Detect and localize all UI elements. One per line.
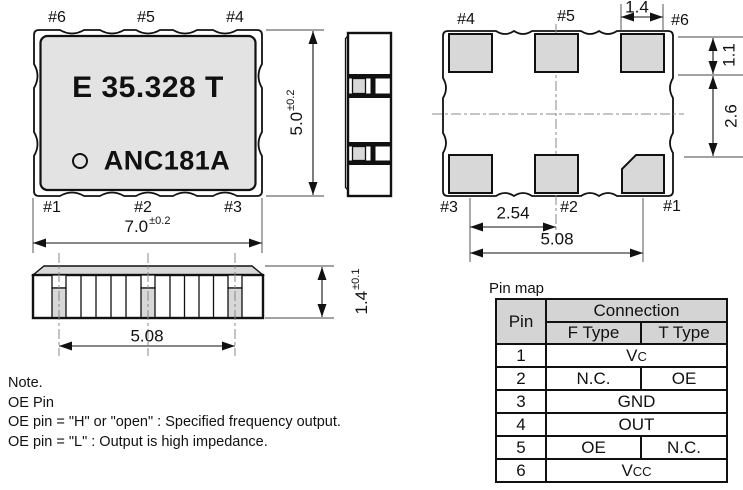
connection-value-sub: C: [637, 349, 646, 364]
side-castellation-pad-1: [353, 79, 366, 94]
connection-value: V: [626, 346, 637, 365]
pad-6: [621, 34, 664, 72]
note-line: OE pin = "L" : Output is high impedance.: [8, 433, 341, 453]
dim-front-height-tol: ±0.2: [285, 90, 297, 111]
dim-row-gap: 2.6: [723, 104, 740, 128]
pad-3: [449, 155, 492, 193]
header-pin: Pin: [496, 299, 546, 344]
dim-pad-height: 1.1: [721, 43, 738, 67]
pad-5: [535, 34, 578, 72]
bottom-pin-label-6: #6: [671, 13, 689, 29]
connection-merged: OUT: [546, 413, 727, 436]
dim-side-height-tol: ±0.1: [350, 269, 362, 290]
header-f-type: F Type: [546, 322, 641, 344]
header-t-type: T Type: [641, 322, 727, 344]
table-row-pin6: 6 VCC: [496, 459, 727, 482]
bottom-pin-label-5: #5: [557, 9, 575, 25]
datasheet-package-drawing: #6 #5 #4 #1 #2 #3 E 35.328 T ANC181A 7.0…: [0, 0, 743, 490]
table-row-pin1: 1 VC: [496, 344, 727, 367]
note-block: Note. OE Pin OE pin = "H" or "open" : Sp…: [8, 374, 341, 452]
front-pin-label-1: #1: [43, 200, 61, 216]
table-row-pin4: 4 OUT: [496, 413, 727, 436]
connection-value: V: [621, 461, 632, 480]
dim-pad-width: 1.4: [625, 0, 649, 16]
table-row-pin5: 5 OE N.C.: [496, 436, 727, 459]
dim-front-width-tol: ±0.2: [149, 215, 170, 227]
connection-value-sub: CC: [633, 464, 652, 479]
connection-t: N.C.: [641, 436, 727, 459]
table-row-pin3: 3 GND: [496, 390, 727, 413]
pin-number: 1: [496, 344, 546, 367]
table-header-row: Pin Connection: [496, 299, 727, 322]
note-line: OE Pin: [8, 394, 341, 414]
front-pin-label-2: #2: [134, 200, 152, 216]
connection-value: OUT: [619, 415, 655, 434]
dim-pad-span: 5.08: [540, 231, 573, 248]
package-marking-frequency: E 35.328 T: [72, 71, 224, 105]
pin-map-table: Pin Connection F Type T Type 1 VC 2 N.C.…: [495, 298, 728, 483]
side-castellation-pad-2: [353, 147, 366, 161]
dim-front-height: 5.0±0.2: [287, 91, 305, 136]
table-row-pin2: 2 N.C. OE: [496, 367, 727, 390]
connection-f: OE: [546, 436, 641, 459]
front-pin-label-4: #4: [226, 10, 244, 26]
dim-side-span: 5.08: [130, 328, 163, 345]
connection-value: GND: [618, 392, 656, 411]
pin-number: 5: [496, 436, 546, 459]
bottom-pin-label-2: #2: [560, 200, 578, 216]
dim-side-height: 1.4±0.1: [352, 270, 370, 315]
connection-merged: GND: [546, 390, 727, 413]
bottom-pin-label-3: #3: [440, 200, 458, 216]
package-marking-model: ANC181A: [104, 146, 231, 177]
dim-front-width: 7.0±0.2: [125, 217, 170, 235]
pin-number: 3: [496, 390, 546, 413]
front-pin-label-3: #3: [224, 200, 242, 216]
dim-front-width-value: 7.0: [125, 217, 149, 236]
note-line: OE pin = "H" or "open" : Specified frequ…: [8, 413, 341, 433]
pad-4: [449, 34, 492, 72]
connection-merged: VCC: [546, 459, 727, 482]
dim-side-height-value: 1.4: [352, 291, 371, 315]
bottom-pin-label-4: #4: [457, 12, 475, 28]
pad-2: [535, 155, 578, 193]
connection-f: N.C.: [546, 367, 641, 390]
pin-number: 6: [496, 459, 546, 482]
note-line: Note.: [8, 374, 341, 394]
header-connection: Connection: [546, 299, 727, 322]
front-pin-label-5: #5: [137, 10, 155, 26]
front-pin-label-6: #6: [48, 10, 66, 26]
dim-pad-pitch: 2.54: [496, 205, 529, 222]
connection-t: OE: [641, 367, 727, 390]
pin-number: 2: [496, 367, 546, 390]
pin-map-title: Pin map: [489, 280, 544, 297]
side-view-outline: [346, 33, 392, 196]
dim-front-height-value: 5.0: [287, 112, 306, 136]
bottom-pin-label-1: #1: [663, 199, 681, 215]
connection-merged: VC: [546, 344, 727, 367]
pin-number: 4: [496, 413, 546, 436]
